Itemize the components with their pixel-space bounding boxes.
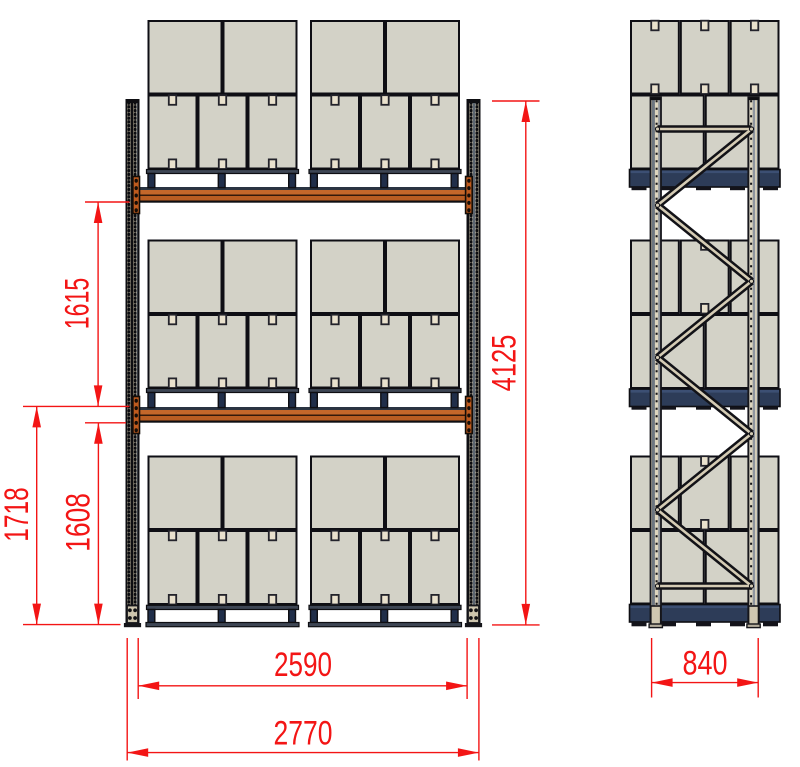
svg-text:1615: 1615 [59, 278, 96, 329]
svg-text:2590: 2590 [274, 647, 332, 684]
svg-text:1608: 1608 [60, 493, 98, 552]
svg-text:840: 840 [682, 643, 727, 682]
svg-text:2770: 2770 [274, 715, 333, 753]
svg-text:1718: 1718 [0, 487, 36, 541]
svg-text:4125: 4125 [486, 335, 523, 392]
